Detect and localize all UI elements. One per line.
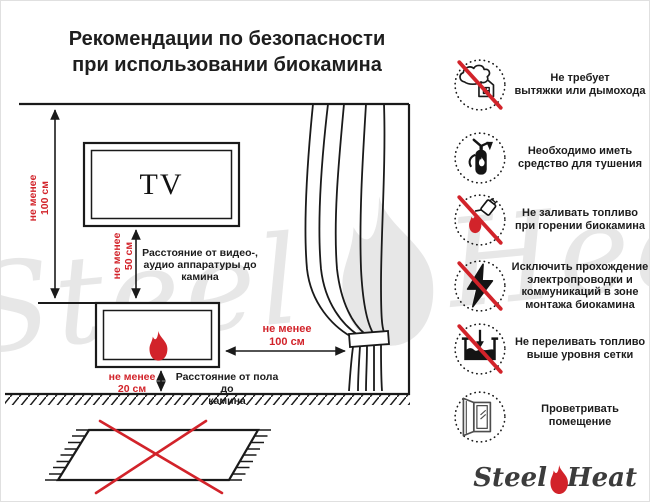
no-wiring-icon [452, 258, 508, 314]
tv-clearance-label: не менее 50 см [111, 206, 135, 306]
no-refuel-icon [452, 192, 508, 248]
ventilate-icon [452, 389, 508, 445]
page-title: Рекомендации по безопасности при использ… [1, 26, 453, 78]
curtain-tieback [349, 331, 389, 347]
floor-clearance-label: не менее 20 см [89, 371, 175, 395]
tv-label: TV [84, 143, 239, 226]
floor-clearance-desc: Расстояние от пола до камина [168, 371, 286, 407]
logo-flame-icon [546, 465, 568, 494]
logo-text-steel: Steel [473, 463, 547, 493]
brand-logo: Steel Heat [473, 463, 637, 493]
tv-clearance-desc: Расстояние от видео-, аудио аппаратуры д… [141, 247, 259, 283]
infographic-canvas: Steel Heat [0, 0, 650, 502]
logo-text-heat: Heat [567, 463, 637, 493]
no-overfill-icon [452, 321, 508, 377]
rug [45, 421, 271, 493]
extinguisher-icon [452, 130, 508, 186]
ceiling-clearance-label: не менее 100 см [27, 148, 51, 248]
no-chimney-icon [452, 57, 508, 113]
curtain-clearance-label: не менее 100 см [241, 323, 333, 349]
